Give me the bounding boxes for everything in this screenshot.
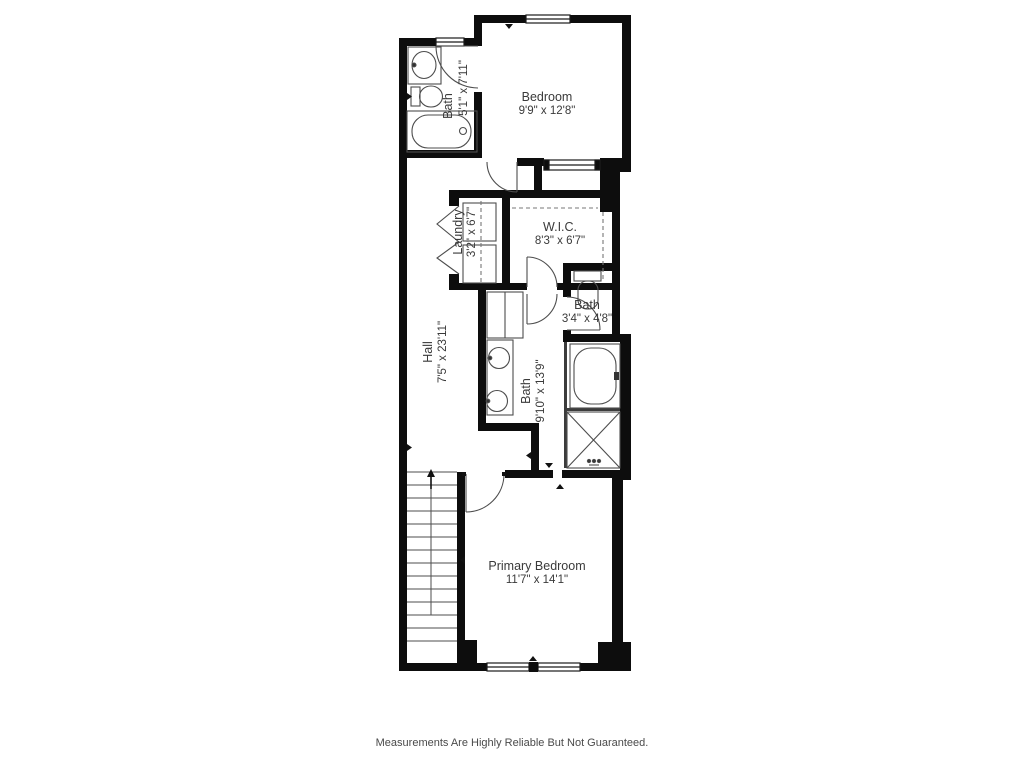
bathtub-basin-icon [412, 115, 471, 148]
tick-mark [407, 444, 412, 451]
door-jamb-mark [462, 472, 466, 476]
bathtub-icon [570, 344, 620, 408]
room-labels: Bath 5'1" x 7'11" Bedroom 9'9" x 12'8" L… [421, 60, 612, 586]
fixtures [407, 47, 620, 468]
window-mullion [529, 662, 538, 672]
wall-segment [563, 263, 620, 271]
wall-segment [478, 283, 486, 431]
floor-plan-canvas: Bath 5'1" x 7'11" Bedroom 9'9" x 12'8" L… [0, 0, 1024, 768]
tick-mark [545, 463, 553, 468]
room-dims-bedroom: 9'9" x 12'8" [519, 105, 576, 117]
door-jamb-mark [502, 472, 506, 476]
faucet-icon [412, 63, 416, 67]
tick-mark [526, 452, 531, 459]
tick-mark [529, 656, 537, 661]
window-bedroom [526, 15, 570, 23]
closet-slider-door [544, 160, 600, 170]
room-label-primary-bedroom: Primary Bedroom [488, 559, 585, 573]
wall-segment [622, 15, 631, 172]
wall-segment [399, 150, 482, 158]
wall-segment [562, 470, 623, 478]
door-wic [527, 257, 557, 287]
wall-segment [474, 92, 482, 158]
door-bedroom [487, 162, 517, 192]
wall-segment [620, 334, 631, 480]
toilet-tank-icon [411, 87, 420, 106]
tub-faucet-icon [614, 372, 619, 380]
room-label-hall: Hall [421, 341, 435, 363]
wall-segment [598, 642, 631, 671]
wall-segment [449, 190, 612, 198]
wall-segment [563, 334, 631, 342]
room-dims-laundry: 3'2" x 6'7" [466, 207, 478, 257]
staircase [407, 469, 457, 641]
room-label-laundry: Laundry [451, 209, 465, 255]
room-label-bath-small: Bath [574, 298, 600, 312]
tick-mark [556, 484, 564, 489]
shower-icon [567, 412, 620, 468]
wall-segment [449, 283, 527, 290]
window-primary-right [538, 663, 580, 671]
room-dims-bath-upper: 5'1" x 7'11" [458, 60, 470, 116]
wall-segment [612, 164, 620, 342]
wall-segment [505, 470, 553, 478]
tick-mark [505, 24, 513, 29]
room-dims-wic: 8'3" x 6'7" [535, 235, 585, 247]
bathtub-basin-icon [574, 348, 616, 404]
wall-segment [600, 158, 612, 212]
room-dims-bath-small: 3'4" x 4'8" [562, 313, 612, 325]
room-dims-hall: 7'5" x 23'11" [437, 321, 449, 383]
toilet-bowl-icon [420, 86, 443, 107]
wall-segment [478, 423, 539, 431]
room-label-wic: W.I.C. [543, 220, 577, 234]
wall-segment [474, 23, 482, 46]
door-bath-upper [436, 46, 478, 88]
window-primary-left [487, 663, 529, 671]
window-bath-upper [436, 38, 464, 46]
disclaimer-text: Measurements Are Highly Reliable But Not… [376, 737, 649, 749]
wall-segment [449, 190, 459, 206]
room-label-bedroom: Bedroom [522, 90, 573, 104]
floor-plan-page: Bath 5'1" x 7'11" Bedroom 9'9" x 12'8" L… [0, 0, 1024, 768]
wall-segment [563, 271, 571, 297]
room-dims-primary-bedroom: 11'7" x 14'1" [506, 574, 568, 586]
wall-segment [612, 480, 623, 663]
room-label-bath-primary: Bath [519, 378, 533, 404]
room-dims-bath-primary: 9'10" x 13'9" [535, 359, 547, 422]
wall-segment [531, 423, 539, 476]
door-primary-bedroom [466, 474, 504, 512]
wall-segment [612, 158, 622, 166]
door-bath-primary [527, 294, 557, 324]
tub-faucet-icon [460, 128, 467, 135]
wall-segment [399, 38, 407, 671]
wall-segment [502, 198, 510, 290]
faucet-icon [488, 356, 492, 360]
toilet-tank-icon [574, 271, 601, 281]
room-label-bath-upper: Bath [441, 93, 455, 119]
faucet-icon [486, 399, 490, 403]
